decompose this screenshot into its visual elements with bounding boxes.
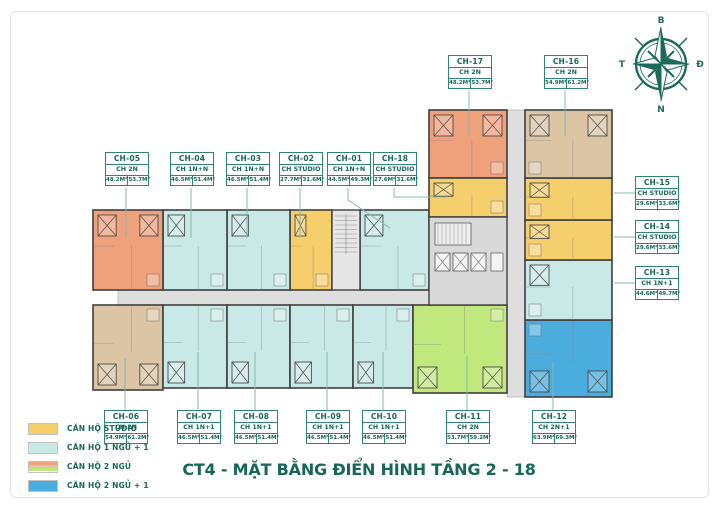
compass-west-label: T xyxy=(619,60,626,70)
unit-label-CH-10: CH-10CH 1N+146.5M²51.4M² xyxy=(362,410,406,444)
legend-item: CĂN HỘ 1 NGỦ + 1 xyxy=(28,438,149,457)
unit-shape-CH-08 xyxy=(227,305,290,388)
plan-title: CT4 - MẶT BẰNG ĐIỂN HÌNH TẦNG 2 - 18 xyxy=(0,460,718,479)
unit-label-CH-01: CH-01CH 1N+N44.5M²49.3M² xyxy=(327,152,371,186)
corridor xyxy=(507,110,525,397)
unit-area-gross: 51.4M² xyxy=(385,434,406,443)
unit-shape-CH-09 xyxy=(290,305,353,388)
legend-label: CĂN HỘ 2 NGỦ + 1 xyxy=(67,481,149,490)
unit-area-gross: 31.6M² xyxy=(302,176,323,185)
unit-shape-CH-14 xyxy=(525,220,612,260)
unit-area-net: 44.5M² xyxy=(328,176,350,185)
unit-area-gross: 31.6M² xyxy=(396,176,417,185)
unit-type: CH 1N+1 xyxy=(178,423,220,434)
unit-area-net: 46.5M² xyxy=(235,434,257,443)
unit-id: CH-10 xyxy=(363,411,405,423)
unit-type: CH 1N+1 xyxy=(307,423,349,434)
unit-area-gross: 51.4M² xyxy=(200,434,221,443)
unit-type: CH 2N xyxy=(545,68,587,79)
unit-area-net: 27.6M² xyxy=(374,176,396,185)
unit-type: CH 1N+N xyxy=(227,165,269,176)
unit-id: CH-17 xyxy=(449,56,491,68)
unit-type: CH 2N xyxy=(447,423,489,434)
unit-id: CH-05 xyxy=(106,153,148,165)
unit-shape-CH-11 xyxy=(413,305,507,393)
unit-shape-CH-03 xyxy=(227,210,290,290)
unit-id: CH-11 xyxy=(447,411,489,423)
unit-area-net: 46.5M² xyxy=(171,176,193,185)
unit-area-gross: 33.6M² xyxy=(658,200,679,209)
unit-area-gross: 49.7M² xyxy=(658,290,679,299)
unit-area-net: 44.6M² xyxy=(636,290,658,299)
stair-block xyxy=(332,210,360,290)
unit-area-net: 46.5M² xyxy=(178,434,200,443)
unit-area-gross: 53.7M² xyxy=(128,176,149,185)
unit-type: CH STUDIO xyxy=(280,165,322,176)
unit-type: CH 1N+N xyxy=(171,165,213,176)
unit-id: CH-08 xyxy=(235,411,277,423)
unit-id: CH-04 xyxy=(171,153,213,165)
unit-label-CH-11: CH-11CH 2N53.7M²59.2M² xyxy=(446,410,490,444)
unit-shape-CH-13 xyxy=(525,260,612,320)
compass-east-label: Đ xyxy=(696,60,704,70)
unit-label-CH-08: CH-08CH 1N+146.5M²51.4M² xyxy=(234,410,278,444)
unit-shape-CH-05 xyxy=(93,210,163,290)
unit-area-net: 27.7M² xyxy=(280,176,302,185)
unit-label-CH-16: CH-16CH 2N54.9M²61.2M² xyxy=(544,55,588,89)
lift-core xyxy=(429,217,507,305)
unit-label-CH-13: CH-13CH 1N+144.6M²49.7M² xyxy=(635,266,679,300)
unit-shape-CH-06 xyxy=(93,305,163,390)
unit-area-net: 29.6M² xyxy=(636,244,658,253)
unit-label-CH-05: CH-05CH 2N48.2M²53.7M² xyxy=(105,152,149,186)
unit-id: CH-03 xyxy=(227,153,269,165)
legend-swatch xyxy=(28,442,58,454)
legend-swatch xyxy=(28,480,58,492)
unit-id: CH-14 xyxy=(636,221,678,233)
unit-shape-CH-02 xyxy=(290,210,332,290)
unit-shape-CH-04 xyxy=(163,210,227,290)
unit-label-CH-04: CH-04CH 1N+N46.5M²51.4M² xyxy=(170,152,214,186)
unit-area-net: 48.2M² xyxy=(106,176,128,185)
unit-area-gross: 51.4M² xyxy=(249,176,270,185)
unit-shape-CH-01 xyxy=(360,210,429,290)
unit-shape-CH-07 xyxy=(163,305,227,388)
unit-area-gross: 51.4M² xyxy=(193,176,214,185)
legend-label: CĂN HỘ 1 NGỦ + 1 xyxy=(67,443,149,452)
legend-item: CĂN HỘ STUDIO xyxy=(28,419,149,438)
unit-label-CH-03: CH-03CH 1N+N46.5M²51.4M² xyxy=(226,152,270,186)
unit-id: CH-16 xyxy=(545,56,587,68)
unit-area-gross: 61.2M² xyxy=(567,79,588,88)
unit-area-net: 46.5M² xyxy=(307,434,329,443)
unit-label-CH-18: CH-18CH STUDIO27.6M²31.6M² xyxy=(373,152,417,186)
unit-shape-CH-15 xyxy=(525,178,612,220)
unit-type: CH 1N+1 xyxy=(363,423,405,434)
unit-label-CH-07: CH-07CH 1N+146.5M²51.4M² xyxy=(177,410,221,444)
unit-id: CH-01 xyxy=(328,153,370,165)
unit-label-CH-12: CH-12CH 2N+163.9M²69.3M² xyxy=(532,410,576,444)
legend: CĂN HỘ STUDIOCĂN HỘ 1 NGỦ + 1CĂN HỘ 2 NG… xyxy=(28,419,149,495)
unit-area-gross: 33.6M² xyxy=(658,244,679,253)
floor-plan-poster: CH-01CH 1N+N44.5M²49.3M²CH-02CH STUDIO27… xyxy=(0,0,718,508)
unit-type: CH STUDIO xyxy=(636,233,678,244)
unit-id: CH-13 xyxy=(636,267,678,279)
legend-label: CĂN HỘ STUDIO xyxy=(67,424,137,433)
unit-shape-CH-16 xyxy=(525,110,612,178)
unit-area-net: 46.5M² xyxy=(227,176,249,185)
unit-type: CH 1N+N xyxy=(328,165,370,176)
unit-type: CH 2N+1 xyxy=(533,423,575,434)
unit-label-CH-09: CH-09CH 1N+146.5M²51.4M² xyxy=(306,410,350,444)
unit-id: CH-09 xyxy=(307,411,349,423)
unit-area-net: 29.6M² xyxy=(636,200,658,209)
unit-type: CH 2N xyxy=(106,165,148,176)
compass-rose-icon: B Đ N T xyxy=(616,14,706,114)
unit-label-CH-14: CH-14CH STUDIO29.6M²33.6M² xyxy=(635,220,679,254)
unit-label-CH-17: CH-17CH 2N48.2M²53.7M² xyxy=(448,55,492,89)
unit-area-net: 54.9M² xyxy=(545,79,567,88)
unit-label-CH-15: CH-15CH STUDIO29.6M²33.6M² xyxy=(635,176,679,210)
unit-type: CH 1N+1 xyxy=(636,279,678,290)
legend-swatch xyxy=(28,423,58,435)
unit-area-gross: 51.4M² xyxy=(257,434,278,443)
unit-area-gross: 59.2M² xyxy=(469,434,490,443)
unit-area-net: 63.9M² xyxy=(533,434,555,443)
unit-id: CH-18 xyxy=(374,153,416,165)
unit-type: CH STUDIO xyxy=(636,189,678,200)
unit-area-net: 46.5M² xyxy=(363,434,385,443)
unit-area-gross: 53.7M² xyxy=(471,79,492,88)
unit-label-CH-02: CH-02CH STUDIO27.7M²31.6M² xyxy=(279,152,323,186)
unit-area-gross: 49.3M² xyxy=(350,176,371,185)
compass-north-label: B xyxy=(658,16,665,26)
unit-area-gross: 51.4M² xyxy=(329,434,350,443)
unit-type: CH STUDIO xyxy=(374,165,416,176)
unit-area-net: 48.2M² xyxy=(449,79,471,88)
unit-shape-CH-12 xyxy=(525,320,612,397)
unit-id: CH-07 xyxy=(178,411,220,423)
unit-type: CH 2N xyxy=(449,68,491,79)
unit-area-gross: 69.3M² xyxy=(555,434,576,443)
unit-id: CH-12 xyxy=(533,411,575,423)
unit-type: CH 1N+1 xyxy=(235,423,277,434)
unit-id: CH-02 xyxy=(280,153,322,165)
unit-id: CH-15 xyxy=(636,177,678,189)
compass-south-label: N xyxy=(657,105,665,114)
unit-area-net: 53.7M² xyxy=(447,434,469,443)
unit-shape-CH-17 xyxy=(429,110,507,178)
